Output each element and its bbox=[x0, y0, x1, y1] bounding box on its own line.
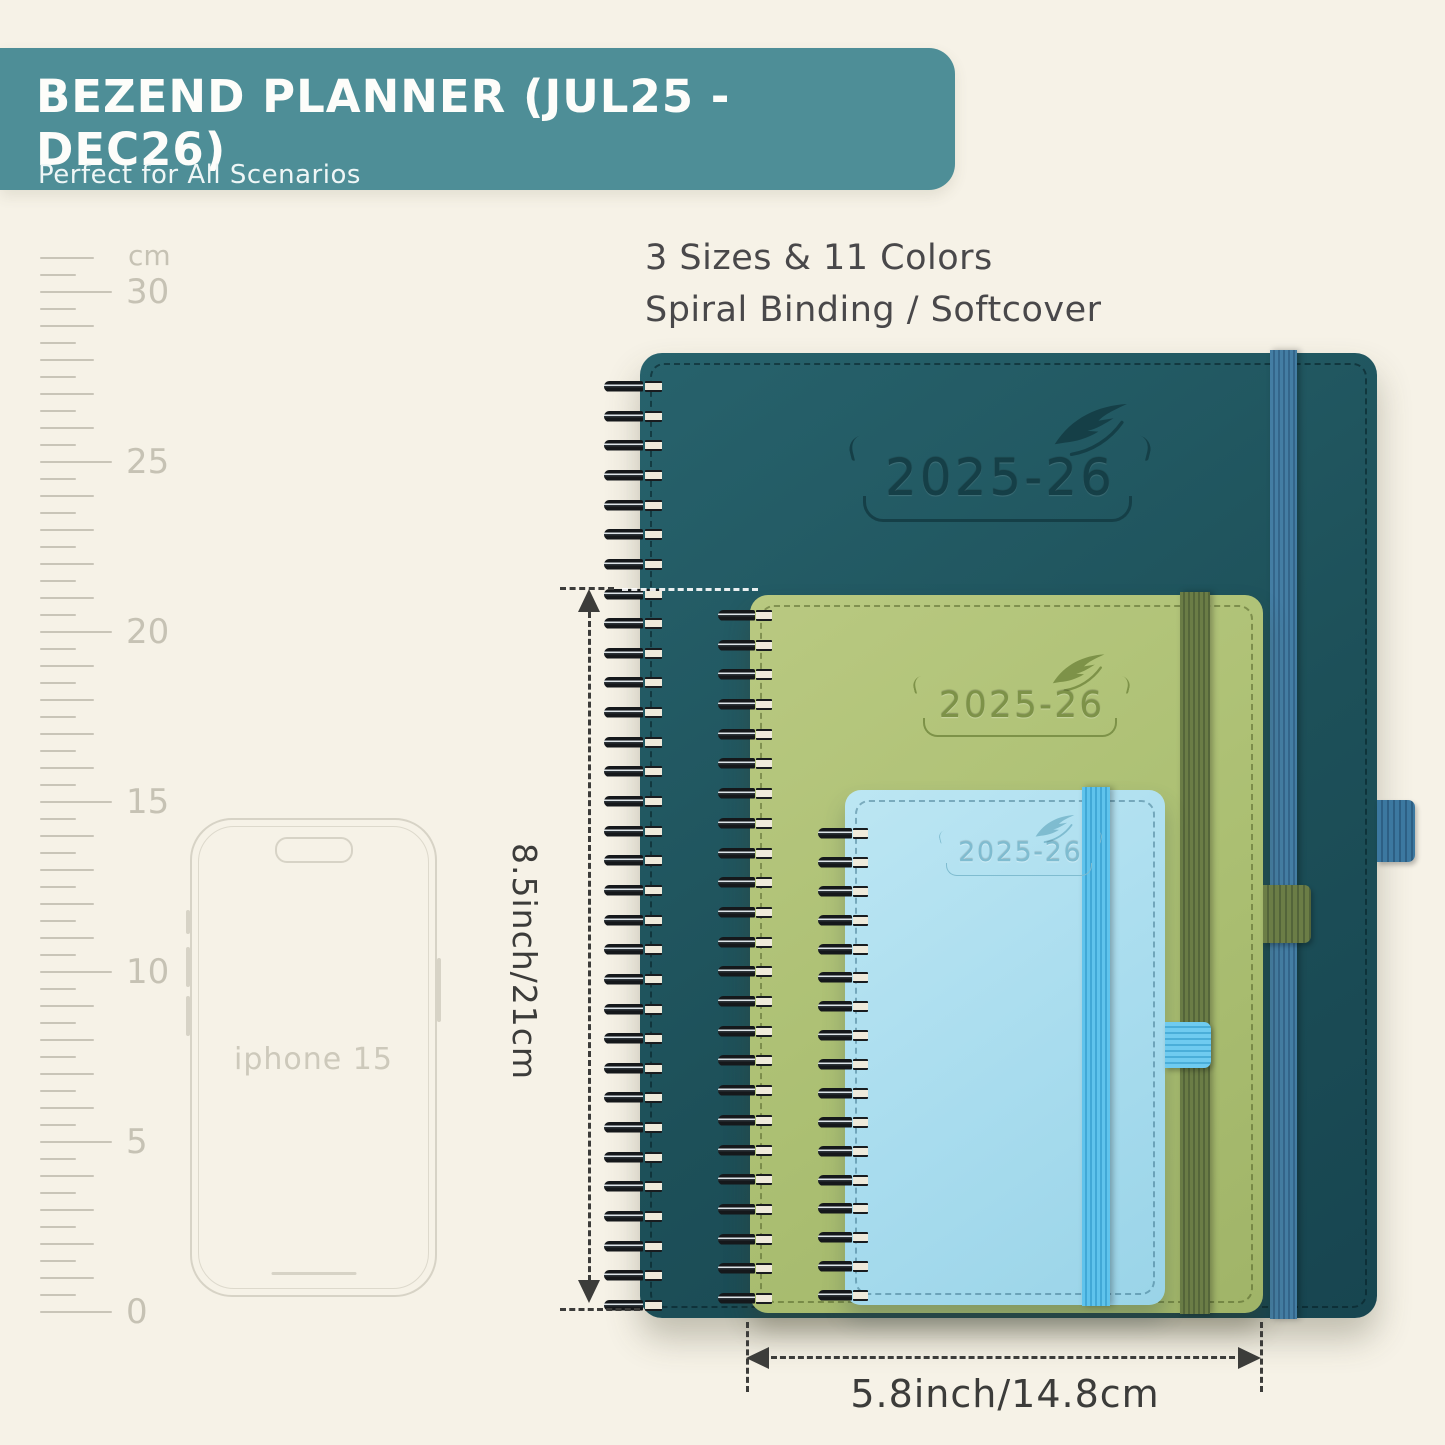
ruler-label-20: 20 bbox=[126, 615, 196, 649]
spiral-coil bbox=[818, 1117, 868, 1129]
ruler-tick bbox=[40, 529, 94, 531]
ruler-tick bbox=[40, 1311, 112, 1313]
ruler-tick bbox=[40, 869, 94, 871]
spiral-coil bbox=[718, 1234, 772, 1246]
ruler-tick bbox=[40, 410, 76, 412]
ruler-tick bbox=[40, 920, 76, 922]
spiral-coil bbox=[718, 937, 772, 949]
width-dimension-line bbox=[762, 1356, 1244, 1359]
ruler-tick bbox=[40, 784, 76, 786]
spiral-coil bbox=[604, 500, 662, 512]
ruler-tick bbox=[40, 1294, 76, 1296]
spiral-coil bbox=[818, 944, 868, 956]
headline-sizes-colors: 3 Sizes & 11 Colors bbox=[645, 238, 993, 278]
spiral-coil bbox=[604, 618, 662, 630]
ruler-tick bbox=[40, 716, 76, 718]
bracket-underline-icon bbox=[923, 718, 1117, 736]
ruler-tick bbox=[40, 376, 76, 378]
spiral-coil bbox=[818, 1088, 868, 1100]
ruler-tick bbox=[40, 1209, 94, 1211]
spiral-coil bbox=[604, 1092, 662, 1104]
ruler-tick bbox=[40, 1175, 94, 1177]
spiral-coil bbox=[604, 1004, 662, 1016]
ruler-label-15: 15 bbox=[126, 785, 196, 819]
spiral-coil bbox=[718, 966, 772, 978]
spiral-coil bbox=[604, 974, 662, 986]
ruler-tick bbox=[40, 291, 112, 293]
ruler-unit-label: cm bbox=[128, 241, 198, 271]
spiral-coil bbox=[718, 877, 772, 889]
spiral-coil bbox=[718, 1293, 772, 1305]
height-dimension-label: 8.5inch/21cm bbox=[505, 843, 544, 1073]
spiral-coil bbox=[818, 1030, 868, 1042]
ruler-tick bbox=[40, 1243, 94, 1245]
ruler-tick bbox=[40, 1073, 94, 1075]
spiral-coil bbox=[818, 1261, 868, 1273]
spiral-coil bbox=[718, 699, 772, 711]
ruler-tick bbox=[40, 1005, 94, 1007]
ruler-tick bbox=[40, 903, 94, 905]
phone-volume-down-button bbox=[186, 996, 190, 1036]
ruler-tick bbox=[40, 1192, 76, 1194]
ruler-tick bbox=[40, 1277, 94, 1279]
spiral-coil bbox=[818, 828, 868, 840]
ruler-label-0: 0 bbox=[126, 1295, 196, 1329]
ruler-tick bbox=[40, 444, 76, 446]
ruler-tick bbox=[40, 631, 112, 633]
ruler-tick bbox=[40, 597, 94, 599]
arrow-left-icon bbox=[746, 1347, 769, 1369]
spiral-coil bbox=[718, 1145, 772, 1157]
ruler-tick bbox=[40, 1260, 76, 1262]
height-extent-tick-top bbox=[560, 587, 614, 590]
ruler-tick bbox=[40, 614, 76, 616]
spiral-coil bbox=[604, 1241, 662, 1253]
phone-volume-up-button bbox=[186, 947, 190, 987]
spiral-coil bbox=[604, 529, 662, 541]
ruler-tick bbox=[40, 699, 94, 701]
phone-silhouette: iphone 15 bbox=[190, 818, 437, 1297]
width-extent-tick-left bbox=[746, 1322, 749, 1392]
ruler-tick bbox=[40, 954, 76, 956]
planner-large-pen-loop bbox=[1377, 800, 1415, 862]
phone-power-button bbox=[437, 958, 441, 1022]
ruler-tick bbox=[40, 495, 94, 497]
ruler-tick bbox=[40, 325, 94, 327]
ruler-tick bbox=[40, 937, 94, 939]
spiral-coil bbox=[818, 1232, 868, 1244]
phone-action-button bbox=[186, 910, 190, 934]
spiral-coil bbox=[818, 1203, 868, 1215]
product-banner: BEZEND PLANNER (JUL25 - DEC26) Perfect f… bbox=[0, 48, 955, 190]
ruler-tick bbox=[40, 852, 76, 854]
spiral-coil bbox=[604, 1152, 662, 1164]
spiral-coil bbox=[718, 907, 772, 919]
spiral-coil bbox=[604, 559, 662, 571]
spiral-coil bbox=[604, 855, 662, 867]
ruler-tick bbox=[40, 1141, 112, 1143]
headline-binding-cover: Spiral Binding / Softcover bbox=[645, 290, 1102, 330]
width-dimension-label: 5.8inch/14.8cm bbox=[825, 1372, 1185, 1416]
spiral-coil bbox=[718, 669, 772, 681]
planner-medium-pen-loop bbox=[1263, 885, 1311, 943]
planner-small-logo: 2025-26 bbox=[950, 836, 1090, 874]
spiral-coil bbox=[718, 788, 772, 800]
ruler-tick bbox=[40, 886, 76, 888]
spiral-coil bbox=[604, 470, 662, 482]
ruler-tick bbox=[40, 1107, 94, 1109]
ruler-tick bbox=[40, 835, 94, 837]
ruler-tick bbox=[40, 1124, 76, 1126]
planner-medium-elastic-band bbox=[1180, 592, 1210, 1314]
planner-medium-logo: 2025-26 bbox=[928, 683, 1115, 733]
ruler-tick bbox=[40, 359, 94, 361]
spiral-coil bbox=[604, 826, 662, 838]
ruler-tick bbox=[40, 682, 76, 684]
spiral-coil bbox=[604, 1063, 662, 1075]
ruler-tick bbox=[40, 733, 94, 735]
ruler-tick bbox=[40, 1022, 76, 1024]
spiral-coil bbox=[818, 1175, 868, 1187]
spiral-coil bbox=[818, 1290, 868, 1302]
ruler-tick bbox=[40, 461, 112, 463]
spiral-coil bbox=[718, 818, 772, 830]
spiral-coil bbox=[604, 1033, 662, 1045]
ruler-tick bbox=[40, 257, 94, 259]
arrow-down-icon bbox=[578, 1280, 600, 1303]
ruler-tick bbox=[40, 308, 76, 310]
height-dimension-line bbox=[588, 612, 591, 1290]
spiral-coil bbox=[604, 440, 662, 452]
ruler-tick bbox=[40, 767, 94, 769]
spiral-coil bbox=[818, 1059, 868, 1071]
ruler-tick bbox=[40, 665, 94, 667]
bracket-underline-icon bbox=[946, 863, 1092, 876]
ruler-label-30: 30 bbox=[126, 275, 196, 309]
spiral-coil bbox=[718, 1026, 772, 1038]
spiral-coil bbox=[604, 677, 662, 689]
planner-large-elastic-band bbox=[1270, 350, 1297, 1319]
spiral-coil bbox=[604, 885, 662, 897]
spiral-coil bbox=[604, 944, 662, 956]
ruler-tick bbox=[40, 1226, 76, 1228]
spiral-coil bbox=[604, 915, 662, 927]
spiral-coil bbox=[604, 796, 662, 808]
spiral-coil bbox=[604, 1270, 662, 1282]
phone-label: iphone 15 bbox=[192, 1042, 435, 1077]
spiral-coil bbox=[818, 1146, 868, 1158]
spiral-coil bbox=[604, 737, 662, 749]
spiral-coil bbox=[718, 1055, 772, 1067]
spiral-coil bbox=[604, 766, 662, 778]
spiral-coil bbox=[718, 758, 772, 770]
height-extent-tick-bottom bbox=[560, 1308, 640, 1311]
ruler-tick bbox=[40, 1158, 76, 1160]
ruler-tick bbox=[40, 801, 112, 803]
ruler-label-25: 25 bbox=[126, 445, 196, 479]
bracket-underline-icon bbox=[863, 496, 1133, 522]
arrow-right-icon bbox=[1238, 1347, 1261, 1369]
arrow-up-icon bbox=[578, 589, 600, 612]
spiral-coil bbox=[604, 381, 662, 393]
ruler-tick bbox=[40, 274, 76, 276]
ruler-tick bbox=[40, 342, 76, 344]
spiral-coil bbox=[818, 915, 868, 927]
ruler-tick bbox=[40, 478, 76, 480]
ruler-tick bbox=[40, 750, 76, 752]
dynamic-island bbox=[275, 837, 353, 863]
spiral-coil bbox=[604, 1211, 662, 1223]
width-extent-tick-right bbox=[1260, 1322, 1263, 1392]
spiral-coil bbox=[818, 972, 868, 984]
spiral-coil bbox=[718, 640, 772, 652]
ruler-tick bbox=[40, 648, 76, 650]
ruler-tick bbox=[40, 1039, 94, 1041]
spiral-coil bbox=[718, 848, 772, 860]
ruler-tick bbox=[40, 427, 94, 429]
banner-subtitle: Perfect for All Scenarios bbox=[38, 160, 361, 190]
spiral-coil bbox=[718, 996, 772, 1008]
spiral-coil bbox=[604, 1122, 662, 1134]
ruler-tick bbox=[40, 988, 76, 990]
ruler-tick bbox=[40, 512, 76, 514]
ruler-tick bbox=[40, 1056, 76, 1058]
spiral-coil bbox=[604, 1181, 662, 1193]
planner-small-pen-loop bbox=[1165, 1022, 1211, 1068]
spiral-coil bbox=[818, 857, 868, 869]
spiral-coil bbox=[718, 610, 772, 622]
spiral-coil bbox=[604, 707, 662, 719]
ruler-label-5: 5 bbox=[126, 1125, 196, 1159]
planner-small-year-frame: 2025-26 bbox=[950, 836, 1090, 874]
planner-large-logo: 2025-26 bbox=[870, 446, 1130, 517]
spiral-coil bbox=[718, 1085, 772, 1097]
spiral-coil bbox=[604, 648, 662, 660]
planner-medium-year-frame: 2025-26 bbox=[928, 683, 1115, 733]
ruler-tick bbox=[40, 818, 76, 820]
ruler-tick bbox=[40, 563, 94, 565]
spiral-coil bbox=[718, 1115, 772, 1127]
spiral-coil bbox=[718, 729, 772, 741]
height-extent-tick-top-overlay bbox=[622, 588, 758, 591]
spiral-coil bbox=[818, 1001, 868, 1013]
ruler-tick bbox=[40, 546, 76, 548]
ruler-tick bbox=[40, 971, 112, 973]
spiral-coil bbox=[604, 411, 662, 423]
spiral-coil bbox=[718, 1263, 772, 1275]
phone-bottom-port bbox=[271, 1272, 356, 1275]
planner-large-year-frame: 2025-26 bbox=[870, 446, 1130, 517]
spiral-coil bbox=[718, 1174, 772, 1186]
ruler-tick bbox=[40, 580, 76, 582]
ruler-tick bbox=[40, 1090, 76, 1092]
ruler-tick bbox=[40, 393, 94, 395]
spiral-coil bbox=[718, 1204, 772, 1216]
spiral-coil bbox=[818, 886, 868, 898]
